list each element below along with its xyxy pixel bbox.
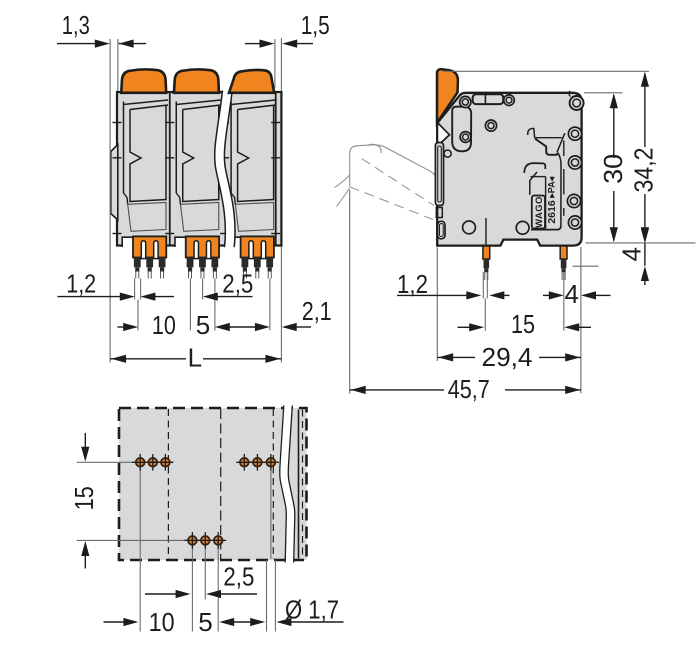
svg-text:2616: 2616 xyxy=(546,200,558,224)
svg-text:▸PA◂: ▸PA◂ xyxy=(546,176,556,198)
svg-text:5: 5 xyxy=(198,607,212,637)
svg-text:34,2: 34,2 xyxy=(629,148,659,193)
svg-text:30: 30 xyxy=(598,154,628,184)
svg-text:4: 4 xyxy=(564,279,578,309)
svg-text:1,2: 1,2 xyxy=(66,269,96,299)
svg-text:45,7: 45,7 xyxy=(448,374,490,404)
svg-text:5: 5 xyxy=(196,310,210,340)
svg-text:1,5: 1,5 xyxy=(301,10,330,40)
svg-text:2,5: 2,5 xyxy=(222,269,253,299)
svg-text:15: 15 xyxy=(69,486,99,510)
svg-text:1,3: 1,3 xyxy=(62,10,90,40)
svg-text:10: 10 xyxy=(152,310,176,340)
svg-text:2,1: 2,1 xyxy=(302,296,332,326)
svg-text:29,4: 29,4 xyxy=(482,342,533,372)
svg-text:10: 10 xyxy=(149,607,175,637)
svg-text:2,5: 2,5 xyxy=(223,561,254,591)
svg-text:4: 4 xyxy=(617,247,647,261)
svg-text:L: L xyxy=(188,342,202,372)
svg-text:WAGO: WAGO xyxy=(534,196,545,228)
svg-text:Ø 1,7: Ø 1,7 xyxy=(285,595,339,625)
svg-text:15: 15 xyxy=(511,309,535,339)
